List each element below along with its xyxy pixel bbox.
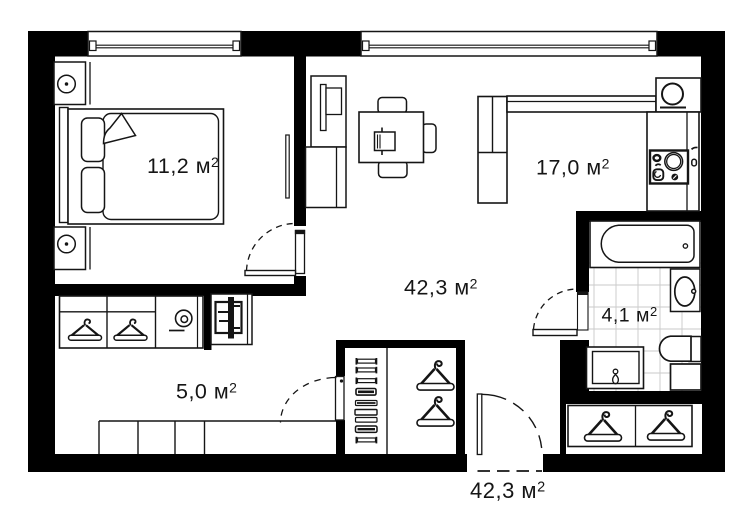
svg-text:42,3 м2: 42,3 м2 — [470, 478, 546, 503]
svg-text:42,3 м2: 42,3 м2 — [404, 276, 478, 300]
svg-text:5,0 м2: 5,0 м2 — [176, 380, 237, 404]
svg-text:11,2 м2: 11,2 м2 — [147, 154, 219, 178]
svg-text:4,1 м2: 4,1 м2 — [602, 304, 658, 327]
svg-text:17,0 м2: 17,0 м2 — [536, 156, 610, 180]
